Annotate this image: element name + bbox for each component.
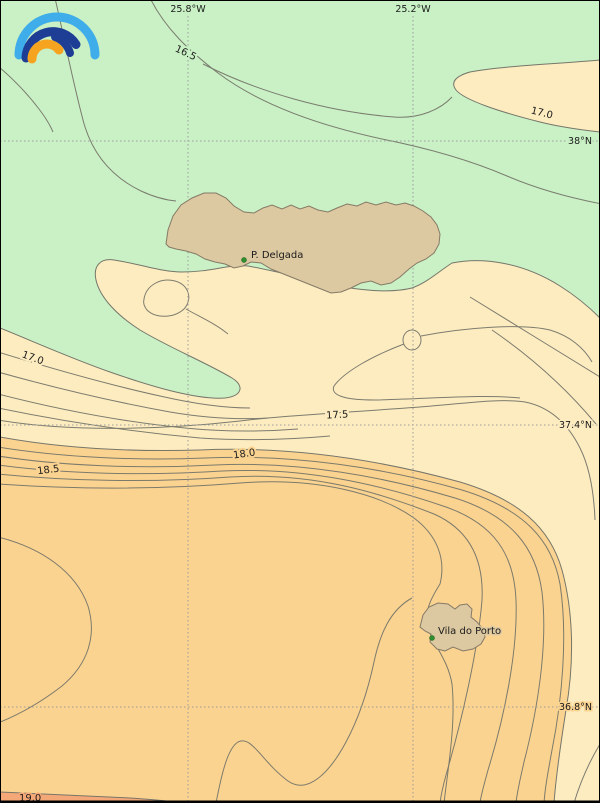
sst-contour-map: P. Delgada Vila do Porto 16.5 17.0 17.0 … xyxy=(0,0,600,803)
parallel-label-36-8n: 36.8°N xyxy=(559,702,592,713)
meridian-label-25-2w: 25.2°W xyxy=(395,4,431,15)
meridian-label-25-8w: 25.8°W xyxy=(170,4,206,15)
map-canvas: P. Delgada Vila do Porto 16.5 17.0 17.0 … xyxy=(0,0,600,803)
p-delgada-marker-dot xyxy=(242,258,247,263)
place-label-p-delgada: P. Delgada xyxy=(251,250,303,261)
parallel-label-38n: 38°N xyxy=(568,136,592,147)
parallel-label-37-4n: 37.4°N xyxy=(559,420,592,431)
place-label-vila-do-porto: Vila do Porto xyxy=(438,626,501,637)
band-18-19 xyxy=(0,437,572,803)
contour-label-17-5: 17.5 xyxy=(326,409,349,421)
vila-do-porto-marker-dot xyxy=(430,636,435,641)
